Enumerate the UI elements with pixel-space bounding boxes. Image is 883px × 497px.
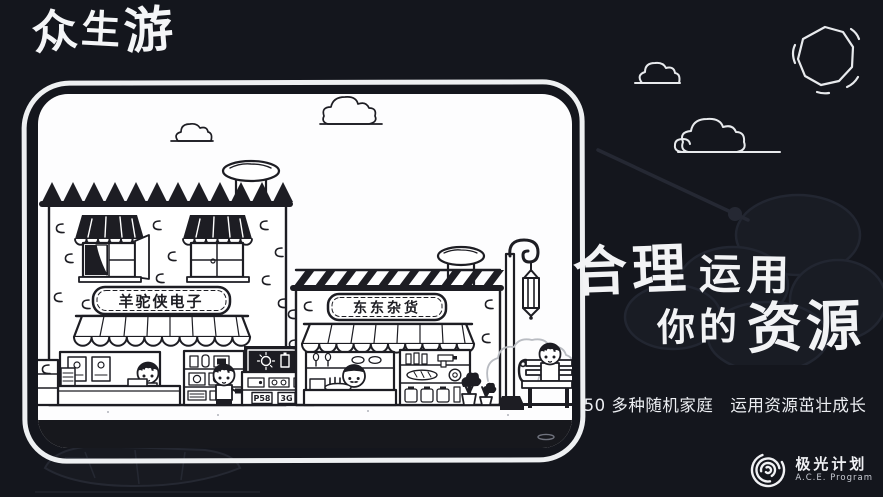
- subtitle: 50 多种随机家庭 运用资源茁壮成长: [579, 392, 871, 416]
- grocery-storefront: [304, 350, 470, 405]
- brand-program: A.C.E. Program: [795, 474, 873, 484]
- bench-boy: [540, 344, 561, 382]
- fence-left: [38, 360, 58, 405]
- street-scene-illustration: 羊驼侠电子: [38, 94, 572, 448]
- price-tag-2: 3G: [280, 394, 292, 403]
- window-right: [183, 215, 252, 282]
- electronics-shop: 羊驼侠电子: [39, 161, 314, 405]
- electronics-storefront: P58 3G: [58, 346, 314, 405]
- title-char: 游: [122, 0, 176, 63]
- electronics-shop-name: 羊驼侠电子: [118, 293, 203, 311]
- brand-name: 极光计划: [795, 456, 873, 473]
- tagline: 合理运用 你的资源: [573, 244, 869, 355]
- title-char: 众: [28, 2, 80, 62]
- tagline-part-2: 运用: [699, 253, 796, 297]
- tagline-part-1: 合理: [572, 242, 692, 300]
- sky-decorations: [620, 15, 880, 165]
- title-char: 生: [80, 7, 121, 56]
- grocery-shop-sign: 东东杂货: [328, 294, 446, 320]
- tagline-line-1: 合理运用: [573, 244, 869, 298]
- illustration-panel: 羊驼侠电子: [38, 94, 572, 448]
- electronics-shop-sign: 羊驼侠电子: [93, 287, 230, 314]
- cloud-icon-large: [675, 119, 780, 152]
- moon-icon: [793, 27, 859, 93]
- sawtooth-roof: [294, 270, 504, 286]
- game-title: 众生游: [32, 2, 173, 61]
- tagline-part-4: 资源: [746, 298, 866, 357]
- window-left: [75, 215, 149, 282]
- promo-screen: 众生游: [0, 0, 883, 497]
- panel-cloud-small: [171, 124, 213, 141]
- cloud-icon-small: [635, 63, 680, 83]
- tagline-line-2: 你的资源: [573, 300, 869, 355]
- street-ground: [38, 403, 572, 448]
- panel-cloud-large: [320, 97, 382, 124]
- electronics-awning: [74, 316, 250, 346]
- grocery-shop-name: 东东杂货: [353, 300, 421, 317]
- brand-logo: 极光计划 A.C.E. Program: [748, 450, 873, 490]
- grocery-awning: [302, 324, 474, 353]
- tagline-part-3: 你的: [657, 307, 742, 346]
- price-tag-1: P58: [254, 394, 271, 403]
- aurora-logo-icon: [748, 450, 788, 490]
